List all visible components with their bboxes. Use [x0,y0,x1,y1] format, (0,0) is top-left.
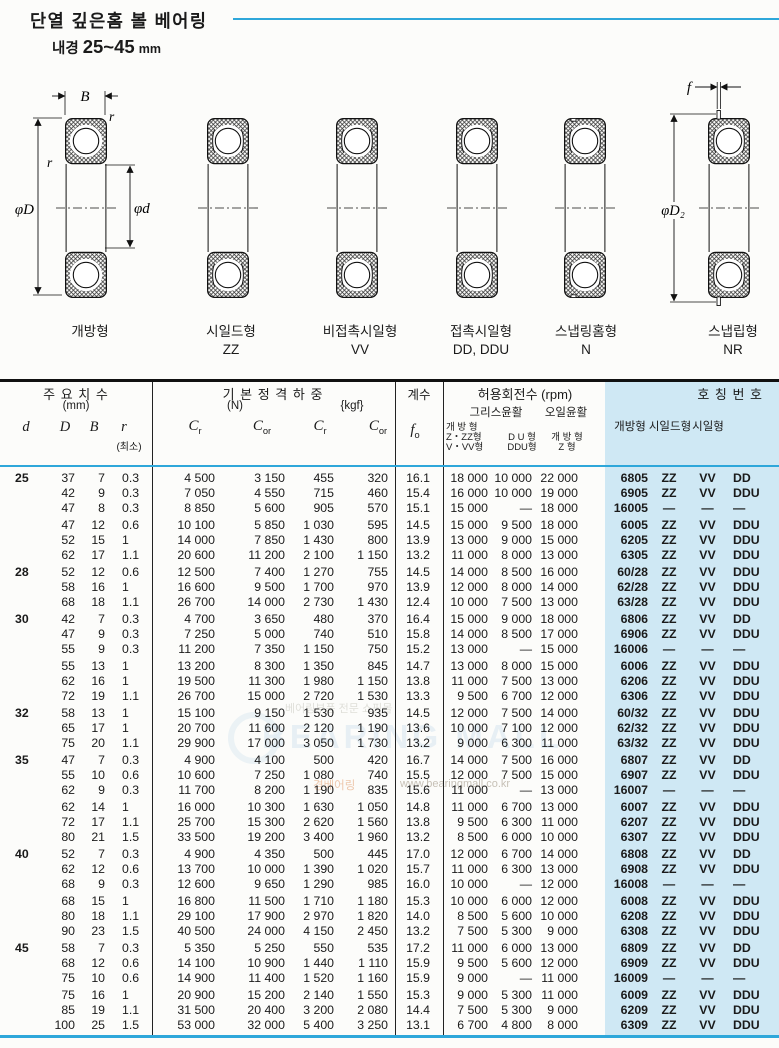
cell-partno: 6306 [578,689,648,704]
cell-cor-n: 17 900 [215,909,285,924]
cell-B: 10 [75,971,105,986]
cell-cr-kgf: 1 150 [285,642,334,657]
cell-cor-n: 7 250 [215,768,285,783]
cell-grease-du: 8 000 [488,548,532,563]
table-row: 455870.35 3505 25055053517.211 0006 0001… [0,941,779,956]
cell-cr-kgf: 3 050 [285,736,334,751]
cell-seal: DDU [725,894,779,909]
cell-vv: VV [690,471,725,486]
cell-vv: VV [690,862,725,877]
cell-D: 68 [40,956,75,971]
cell-cor-kgf: 510 [334,627,388,642]
cell-oil-open: 11 000 [532,736,578,751]
cell-cor-n: 4 550 [215,486,285,501]
table-row: 5513113 2008 3001 35084514.713 0008 0001… [0,659,779,674]
cell-grease-du: 6 700 [488,689,532,704]
cell-vv: VV [690,486,725,501]
cell-fo: 13.2 [388,830,430,845]
cell-partno: 6907 [578,768,648,783]
cell-cr-n: 4 500 [152,471,215,486]
cor-subscript: or [263,426,271,436]
cell-vv: VV [690,768,725,783]
cell-r: 1 [105,894,152,909]
cell-D: 58 [40,941,75,956]
cell-d [0,518,40,533]
cell-cor-n: 32 000 [215,1018,285,1033]
cell-B: 7 [75,612,105,627]
cell-r: 1 [105,659,152,674]
cell-r: 0.6 [105,862,152,877]
cell-cr-n: 20 600 [152,548,215,563]
cell-B: 25 [75,1018,105,1033]
table-row: 6517120 70011 6002 1201 19013.610 0007 1… [0,721,779,736]
cell-cor-n: 15 300 [215,815,285,830]
cell-seal: DD [725,612,779,627]
cell-seal: DDU [725,988,779,1003]
cell-grease-du: 9 000 [488,533,532,548]
cell-cor-n: 5 850 [215,518,285,533]
diagram-label-code: ZZ [206,342,256,357]
cell-grease-du: 6 300 [488,815,532,830]
cell-fo: 14.7 [388,659,430,674]
table-row: 62120.613 70010 0001 3901 02015.711 0006… [0,862,779,877]
cell-zz: ZZ [648,674,690,689]
header-factor-title: 계수 [407,384,430,403]
diagram-label-text: 스냅링홈형 [555,320,617,340]
cell-vv: VV [690,533,725,548]
cell-d [0,894,40,909]
header-col-cr-n: Cr [188,417,201,436]
cell-r: 0.3 [105,642,152,657]
cell-oil-open: 14 000 [532,580,578,595]
cell-D: 55 [40,659,75,674]
cell-D: 62 [40,548,75,563]
cell-vv: VV [690,830,725,845]
cell-grease-du: 4 800 [488,1018,532,1033]
cell-d [0,800,40,815]
cell-B: 18 [75,909,105,924]
cell-D: 42 [40,612,75,627]
cell-fo: 13.9 [388,533,430,548]
cell-D: 65 [40,721,75,736]
cell-vv: — [690,642,725,657]
cell-D: 47 [40,627,75,642]
cell-d [0,924,40,939]
header-col-D: D [60,419,70,436]
cell-cor-kgf: 420 [334,753,388,768]
header-col-r-min: (최소) [116,438,141,453]
cell-grease-open: 10 000 [430,595,488,610]
cell-zz: ZZ [648,612,690,627]
cell-grease-open: 9 500 [430,815,488,830]
cell-zz: ZZ [648,768,690,783]
cell-D: 68 [40,894,75,909]
cell-B: 9 [75,627,105,642]
cell-cr-n: 33 500 [152,830,215,845]
cell-cor-n: 11 300 [215,674,285,689]
cell-seal: DDU [725,689,779,704]
cell-cor-kgf: 570 [334,501,388,516]
cell-cor-kgf: 2 450 [334,924,388,939]
diagram-label-open: 개방형 [71,320,108,342]
cell-grease-open: 9 500 [430,956,488,971]
cell-partno: 60/28 [578,565,648,580]
table-row: 6290.311 7008 2001 19083515.611 000—13 0… [0,783,779,798]
header-oil-lube: 오일윤활 [545,404,587,420]
cell-D: 47 [40,501,75,516]
cell-oil-open: 22 000 [532,471,578,486]
cell-d [0,736,40,751]
cell-cr-n: 31 500 [152,1003,215,1018]
cell-r: 0.3 [105,501,152,516]
cell-grease-open: 12 000 [430,847,488,862]
cell-fo: 17.0 [388,847,430,862]
cell-r: 1.1 [105,1003,152,1018]
cell-cr-n: 10 100 [152,518,215,533]
cell-r: 1.1 [105,548,152,563]
cell-vv: VV [690,659,725,674]
cell-zz: — [648,642,690,657]
cell-grease-du: 6 000 [488,894,532,909]
cell-B: 15 [75,894,105,909]
bearing-diagrams: B r r φD φd [0,75,779,315]
cell-oil-open: 11 000 [532,988,578,1003]
cell-seal: DDU [725,815,779,830]
cell-cor-kgf: 1 150 [334,674,388,689]
cell-cr-kgf: 905 [285,501,334,516]
cell-fo: 14.8 [388,800,430,815]
row-cluster: 2852120.612 5007 4001 27075514.514 0008 … [0,565,779,610]
cell-cr-kgf: 1 030 [285,518,334,533]
cell-cr-n: 12 500 [152,565,215,580]
cell-fo: 13.8 [388,674,430,689]
cell-d [0,533,40,548]
cell-D: 52 [40,533,75,548]
cell-grease-du: 7 500 [488,768,532,783]
cell-seal: DDU [725,548,779,563]
cell-oil-open: 16 000 [532,565,578,580]
cell-cr-kgf: 2 730 [285,595,334,610]
diagram-label-noncontact-seal: 비접촉시일형VV [323,320,398,357]
cell-cr-n: 20 900 [152,988,215,1003]
cell-cr-kgf: 3 400 [285,830,334,845]
cell-D: 62 [40,800,75,815]
cell-cr-n: 14 000 [152,533,215,548]
header-col-d: d [22,419,29,436]
cell-cr-n: 29 100 [152,909,215,924]
cell-cr-n: 16 000 [152,800,215,815]
cell-grease-open: 13 000 [430,659,488,674]
bore-range-subtitle: 내경 25~45 mm [52,36,161,58]
cell-fo: 16.7 [388,753,430,768]
cell-cr-kgf: 1 980 [285,674,334,689]
cell-cr-kgf: 1 430 [285,533,334,548]
table-row: 55100.610 6007 2501 08074015.512 0007 50… [0,768,779,783]
cell-grease-du: — [488,783,532,798]
cell-grease-du: 5 300 [488,924,532,939]
cell-partno: 63/32 [578,736,648,751]
cell-seal: DDU [725,706,779,721]
cell-oil-open: 18 000 [532,518,578,533]
cell-zz: ZZ [648,548,690,563]
cell-partno: 63/28 [578,595,648,610]
diagram-label-text: 개방형 [71,320,108,340]
cell-cor-kgf: 1 020 [334,862,388,877]
row-cluster: 405270.34 9004 35050044517.012 0006 7001… [0,847,779,892]
cell-fo: 15.5 [388,768,430,783]
cell-fo: 14.0 [388,909,430,924]
cell-cr-n: 14 900 [152,971,215,986]
cell-cor-n: 24 000 [215,924,285,939]
cor-symbol: C [253,418,263,434]
cell-B: 7 [75,471,105,486]
bearing-cross-sections-svg: B r r φD φd [0,75,779,315]
cell-fo: 15.3 [388,894,430,909]
cell-oil-open: 8 000 [532,1018,578,1033]
cell-cor-n: 10 000 [215,862,285,877]
cell-vv: VV [690,674,725,689]
cell-cr-n: 4 900 [152,847,215,862]
cell-B: 9 [75,486,105,501]
header-partno-open: 개방형 [614,418,646,434]
cell-oil-open: 16 000 [532,753,578,768]
header-grease-lube: 그리스윤활 [470,404,523,420]
cell-D: 75 [40,988,75,1003]
table-row: 80181.129 10017 9002 9701 82014.08 5005 … [0,909,779,924]
cell-seal: — [725,783,779,798]
cell-zz: ZZ [648,894,690,909]
cell-cor-n: 4 100 [215,753,285,768]
cell-partno: 6808 [578,847,648,862]
cell-cor-kgf: 1 960 [334,830,388,845]
cell-cr-kgf: 2 970 [285,909,334,924]
cell-d [0,627,40,642]
cell-vv: VV [690,924,725,939]
dim-phid-label: φd [134,201,150,217]
table-row: 2852120.612 5007 4001 27075514.514 0008 … [0,565,779,580]
cell-B: 16 [75,988,105,1003]
cell-cr-kgf: 550 [285,941,334,956]
cell-zz: ZZ [648,800,690,815]
cell-fo: 13.8 [388,815,430,830]
cell-cor-n: 9 650 [215,877,285,892]
cell-cr-kgf: 480 [285,612,334,627]
cell-grease-du: 5 600 [488,909,532,924]
cell-oil-open: 12 000 [532,689,578,704]
cell-d [0,768,40,783]
cell-cr-n: 11 200 [152,642,215,657]
cell-oil-open: 18 000 [532,612,578,627]
cell-zz: ZZ [648,518,690,533]
cell-partno: 6909 [578,956,648,971]
bearing-diagram-n [555,119,615,298]
header-partno-sealed: 시일형 [692,418,724,434]
cell-seal: DDU [725,1018,779,1033]
table-row: 7516120 90015 2002 1401 55015.39 0005 30… [0,988,779,1003]
diagram-label-contact-seal: 접촉시일형DD, DDU [450,320,512,357]
cell-fo: 16.0 [388,877,430,892]
cell-B: 23 [75,924,105,939]
cell-cor-kgf: 1 180 [334,894,388,909]
cell-cor-kgf: 1 820 [334,909,388,924]
cell-r: 1.1 [105,736,152,751]
cell-zz: ZZ [648,956,690,971]
cell-fo: 13.1 [388,1018,430,1033]
cell-cor-kgf: 845 [334,659,388,674]
cell-partno: 16006 [578,642,648,657]
cell-d: 32 [0,706,40,721]
cell-cr-n: 26 700 [152,689,215,704]
header-dims-unit: (mm) [63,400,90,412]
cell-cor-kgf: 1 160 [334,971,388,986]
cell-r: 0.6 [105,956,152,971]
table-row: 80211.533 50019 2003 4001 96013.28 5006 … [0,830,779,845]
cell-r: 0.6 [105,971,152,986]
cell-B: 14 [75,800,105,815]
cell-cor-n: 9 500 [215,580,285,595]
cell-zz: ZZ [648,909,690,924]
cell-grease-du: — [488,501,532,516]
cell-cr-kgf: 1 530 [285,706,334,721]
row-cluster: 325813115 1009 1501 53093514.512 0007 50… [0,706,779,751]
cell-cr-n: 7 050 [152,486,215,501]
table-row: 72171.125 70015 3002 6201 56013.89 5006 … [0,815,779,830]
cell-vv: — [690,877,725,892]
cell-D: 52 [40,847,75,862]
cell-oil-open: 15 000 [532,768,578,783]
cell-cr-n: 40 500 [152,924,215,939]
cell-cor-kgf: 370 [334,612,388,627]
cell-cor-kgf: 1 190 [334,721,388,736]
cell-cr-kgf: 2 720 [285,689,334,704]
cell-cor-n: 17 000 [215,736,285,751]
cell-zz: ZZ [648,471,690,486]
cell-cr-n: 16 800 [152,894,215,909]
cell-oil-open: 9 000 [532,1003,578,1018]
cell-r: 1.1 [105,595,152,610]
cell-zz: ZZ [648,753,690,768]
cell-grease-du: 5 300 [488,988,532,1003]
cell-seal: DD [725,753,779,768]
cell-D: 58 [40,706,75,721]
cell-vv: VV [690,1018,725,1033]
cell-oil-open: 17 000 [532,627,578,642]
cell-seal: DDU [725,659,779,674]
cell-vv: VV [690,800,725,815]
cell-cor-n: 3 650 [215,612,285,627]
cell-cr-n: 5 350 [152,941,215,956]
cell-partno: 6006 [578,659,648,674]
cell-d: 28 [0,565,40,580]
cr-subscript: r [198,426,201,436]
cell-d [0,988,40,1003]
cell-seal: DDU [725,595,779,610]
header-grease-open-types: 개 방 형 Z・ZZ형 V・VV형 [446,423,483,453]
table-top-border [0,379,779,382]
cell-B: 13 [75,706,105,721]
cell-grease-du: — [488,971,532,986]
cell-cor-kgf: 970 [334,580,388,595]
cell-d: 35 [0,753,40,768]
cell-B: 8 [75,501,105,516]
cell-cor-kgf: 1 150 [334,548,388,563]
cell-zz: ZZ [648,1018,690,1033]
cr-subscript: r [323,426,326,436]
cell-d [0,689,40,704]
row-cluster: 6815116 80011 5001 7101 18015.310 0006 0… [0,894,779,939]
cell-partno: 6005 [578,518,648,533]
cell-vv: — [690,783,725,798]
cell-cr-kgf: 2 140 [285,988,334,1003]
cell-seal: DDU [725,768,779,783]
cell-fo: 15.3 [388,988,430,1003]
type-line: V・VV형 [446,443,483,453]
cell-partno: 6205 [578,533,648,548]
cell-r: 0.6 [105,768,152,783]
cell-D: 80 [40,830,75,845]
cell-oil-open: 15 000 [532,642,578,657]
table-row: 5816116 6009 5001 70097013.912 0008 0001… [0,580,779,595]
spec-table: 주 요 치 수 (mm) d D B r (최소) 기 본 정 격 하 중 (N… [0,379,779,1040]
cell-d [0,642,40,657]
diagram-labels: 개방형 시일드형ZZ 비접촉시일형VV 접촉시일형DD, DDU 스냅링홈형N … [0,320,779,360]
cell-fo: 13.2 [388,924,430,939]
cell-D: 72 [40,689,75,704]
cell-seal: — [725,501,779,516]
cell-zz: ZZ [648,627,690,642]
cell-cr-kgf: 1 350 [285,659,334,674]
cell-d [0,909,40,924]
cell-partno: 6008 [578,894,648,909]
cell-B: 9 [75,783,105,798]
cell-partno: 6207 [578,815,648,830]
cell-B: 13 [75,659,105,674]
diagram-label-snapring-groove: 스냅링홈형N [555,320,617,357]
cell-fo: 14.5 [388,518,430,533]
cell-zz: ZZ [648,580,690,595]
cell-grease-du: 6 000 [488,941,532,956]
cell-oil-open: 13 000 [532,862,578,877]
cell-r: 0.3 [105,847,152,862]
cell-r: 0.3 [105,627,152,642]
cell-cr-kgf: 2 620 [285,815,334,830]
cell-partno: 6809 [578,941,648,956]
cell-grease-open: 11 000 [430,800,488,815]
table-row: 405270.34 9004 35050044517.012 0006 7001… [0,847,779,862]
cell-fo: 15.6 [388,783,430,798]
cell-D: 55 [40,768,75,783]
cell-B: 10 [75,768,105,783]
table-row: 4290.37 0504 55071546015.416 00010 00019… [0,486,779,501]
cell-B: 19 [75,1003,105,1018]
cell-zz: ZZ [648,815,690,830]
cell-seal: DDU [725,736,779,751]
cell-cr-kgf: 4 150 [285,924,334,939]
cell-cr-kgf: 5 400 [285,1018,334,1033]
cell-zz: ZZ [648,862,690,877]
cell-oil-open: 10 000 [532,830,578,845]
cell-cr-n: 53 000 [152,1018,215,1033]
cell-zz: — [648,501,690,516]
cell-oil-open: 13 000 [532,941,578,956]
cell-oil-open: 13 000 [532,674,578,689]
cell-d [0,659,40,674]
catalog-page: 단열 깊은홈 볼 베어링 내경 25~45 mm [0,0,779,1048]
cell-d [0,877,40,892]
table-row: 75201.129 90017 0003 0501 73013.29 0006 … [0,736,779,751]
cell-D: 62 [40,783,75,798]
cell-cr-n: 7 250 [152,627,215,642]
